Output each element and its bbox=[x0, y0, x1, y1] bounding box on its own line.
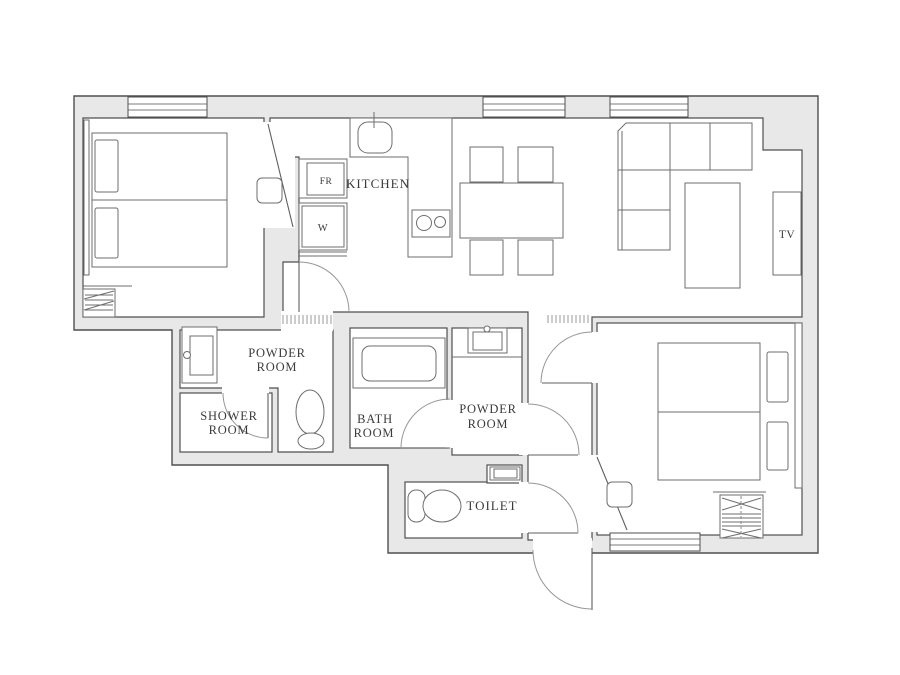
burner bbox=[435, 217, 446, 228]
door-knob-plate bbox=[607, 482, 632, 507]
powder-room-1-label-line-2: ROOM bbox=[257, 360, 298, 374]
basin-2-tap bbox=[484, 326, 490, 332]
luggage-rack bbox=[83, 289, 115, 317]
floor-plan-svg: KITCHENPOWDERROOMSHOWERROOMBATHROOMPOWDE… bbox=[0, 0, 900, 675]
dining-table bbox=[460, 183, 563, 238]
basin-2-inner bbox=[473, 332, 502, 350]
burner bbox=[417, 216, 432, 231]
bath-doorway bbox=[445, 400, 454, 448]
powder-room-1-label-line-1: POWDER bbox=[248, 346, 306, 360]
dining-chair bbox=[470, 147, 503, 182]
toilet-base bbox=[298, 433, 324, 449]
dining-chair bbox=[518, 240, 553, 275]
bed-headboard-panel bbox=[795, 323, 802, 488]
bedroom-1-doorway bbox=[262, 122, 295, 228]
entrance-door-arc bbox=[533, 550, 592, 609]
powder-room-2-label-line-1: POWDER bbox=[459, 402, 517, 416]
window bbox=[610, 533, 700, 551]
bath-room-label-line-1: BATH bbox=[357, 412, 393, 426]
kitchen-sink bbox=[358, 122, 392, 153]
closet-doorway bbox=[590, 332, 599, 383]
toilet-doorway bbox=[519, 482, 531, 533]
bathtub-inner bbox=[362, 346, 436, 381]
window bbox=[483, 97, 565, 117]
pillow bbox=[95, 140, 118, 192]
entrance-doorway bbox=[533, 538, 592, 554]
tv-label: TV bbox=[779, 229, 796, 241]
dining-chair bbox=[470, 240, 503, 275]
toilet-label: TOILET bbox=[466, 498, 517, 513]
washer-label: W bbox=[318, 223, 328, 234]
shower-room-label-line-1: SHOWER bbox=[200, 409, 258, 423]
coffee-table bbox=[685, 183, 740, 288]
toilet-2-tank bbox=[408, 490, 425, 522]
cistern-shelf-inner bbox=[494, 469, 517, 478]
door-knob-plate bbox=[257, 178, 282, 203]
powder-room-2-label-line-2: ROOM bbox=[468, 417, 509, 431]
shower-doorway bbox=[222, 385, 269, 395]
toilet-2-bowl bbox=[423, 490, 461, 522]
pillow bbox=[767, 422, 788, 470]
fridge-label: FR bbox=[320, 177, 333, 187]
vanity-tap bbox=[184, 352, 191, 359]
floor-plan-page: KITCHENPOWDERROOMSHOWERROOMBATHROOMPOWDE… bbox=[0, 0, 900, 675]
bed-headboard-panel bbox=[84, 120, 89, 275]
pillow bbox=[767, 352, 788, 402]
dining-chair bbox=[518, 147, 553, 182]
bedroom-2-doorway bbox=[590, 455, 599, 532]
toilet-bowl bbox=[296, 390, 324, 434]
vanity-basin bbox=[190, 336, 213, 375]
window bbox=[128, 97, 207, 117]
powder-2-doorway bbox=[519, 403, 531, 455]
kitchen-label: KITCHEN bbox=[346, 176, 410, 191]
pillow bbox=[95, 208, 118, 258]
window bbox=[610, 97, 688, 117]
bath-room-label-line-2: ROOM bbox=[354, 426, 395, 440]
shower-room-label-line-2: ROOM bbox=[209, 423, 250, 437]
